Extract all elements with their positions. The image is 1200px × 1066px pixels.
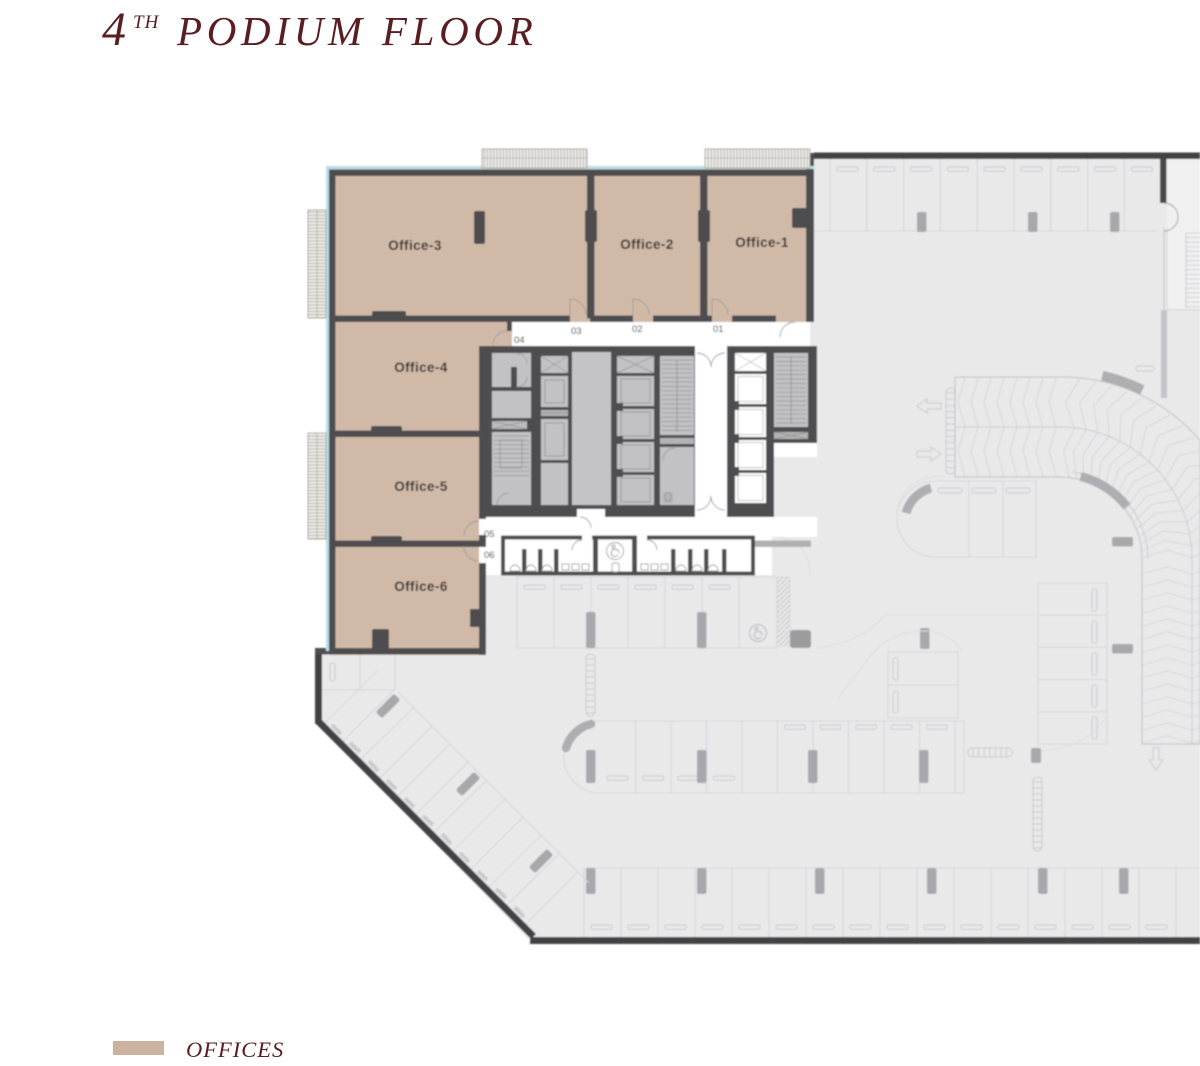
svg-text:OFFICES: OFFICES	[186, 1037, 284, 1062]
svg-text:TH: TH	[133, 12, 160, 33]
svg-text:04: 04	[514, 335, 525, 346]
svg-text:02: 02	[632, 324, 643, 335]
svg-text:05: 05	[484, 529, 495, 540]
svg-text:Office-2: Office-2	[620, 237, 673, 252]
svg-text:PODIUM FLOOR: PODIUM FLOOR	[176, 8, 537, 54]
svg-text:Office-1: Office-1	[735, 235, 789, 250]
svg-text:03: 03	[571, 326, 582, 337]
svg-text:06: 06	[484, 550, 495, 561]
svg-text:Office-4: Office-4	[394, 360, 448, 375]
svg-text:Office-3: Office-3	[388, 238, 442, 253]
svg-text:Office-5: Office-5	[394, 479, 448, 494]
svg-text:01: 01	[713, 324, 724, 335]
svg-text:4: 4	[102, 3, 126, 56]
svg-text:Office-6: Office-6	[394, 579, 448, 594]
